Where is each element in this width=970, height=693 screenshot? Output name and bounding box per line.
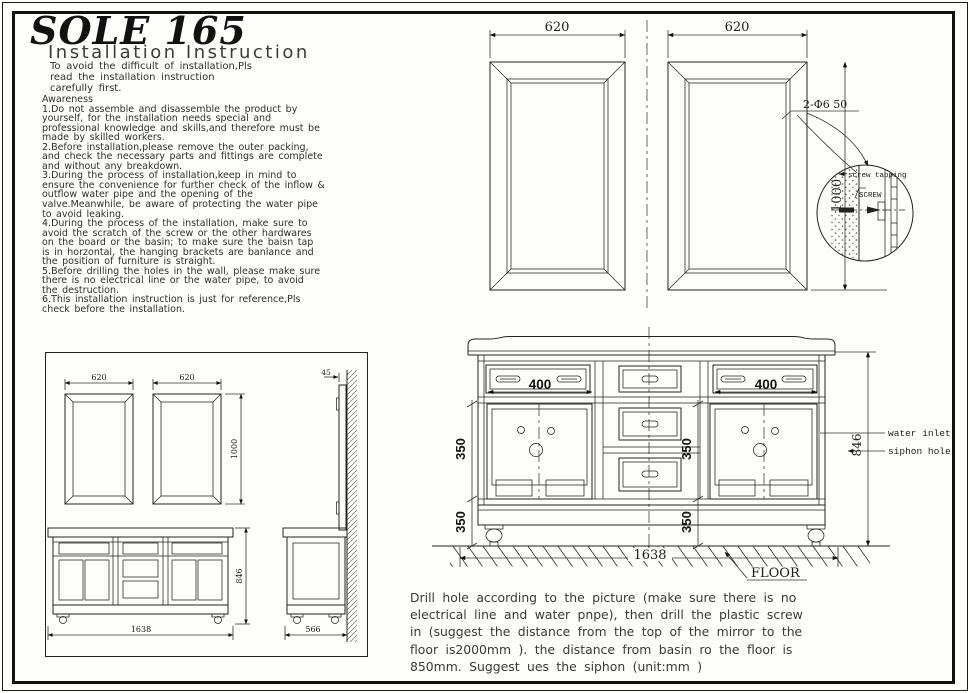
awareness-item-1: 1.Do not assemble and disassemble the pr…: [42, 105, 360, 143]
dim-mirror-width-right: 620: [668, 20, 807, 58]
drain-hole: [530, 444, 543, 457]
dim-350-base-mid: 350: [679, 511, 694, 533]
drawer-middle-2: [619, 408, 681, 440]
screw-spec-label: 2-Φ6 50: [803, 98, 847, 111]
faucet-hole: [772, 428, 779, 435]
dim-mirror-width-left: 620: [490, 20, 625, 58]
ov-620-left: 620: [91, 373, 106, 382]
ov-dim-wall-gap: 45: [321, 368, 347, 382]
ov-1638: 1638: [131, 625, 151, 634]
water-inlet-callout: water inlet: [820, 428, 951, 439]
mirror-left: [490, 62, 625, 290]
drawer-middle-top: [619, 366, 681, 392]
leg-left: [485, 525, 503, 546]
wall-mount-detail: screw tapping SCREW: [817, 162, 913, 264]
ov-mirror-side-view: [337, 385, 347, 530]
water-inlet-label: water inlet: [888, 428, 951, 439]
dim-620-right: 620: [725, 20, 750, 35]
siphon-hole-label: siphon hole: [888, 446, 951, 457]
ov-dim-mirror-height: 1000: [225, 394, 245, 504]
ov-620-right: 620: [179, 373, 194, 382]
awareness-item-2: 2.Before installation,please remove the …: [42, 143, 360, 172]
awareness-item-3: 3.During the process of installation,kee…: [42, 171, 360, 219]
page-subtitle: Installation Instruction: [48, 42, 310, 63]
awareness-item-6: 6.This installation instruction is just …: [42, 295, 360, 314]
overview-mirror-right: [153, 394, 221, 504]
installation-sheet: SOLE 165 Installation Instruction To avo…: [0, 0, 970, 693]
dim-620-left: 620: [545, 20, 570, 35]
screw-spec-callout: 2-Φ6 50: [782, 98, 868, 173]
faucet-hole: [742, 427, 749, 434]
ov-dim-width: 1638: [48, 625, 233, 640]
ov-dim-mirror-left: 620: [65, 373, 133, 390]
floor-label: FLOOR: [751, 566, 801, 581]
dim-350-left: 350 350: [453, 400, 477, 549]
awareness-item-4: 4.During the process of the installation…: [42, 219, 360, 267]
dim-846: 846: [850, 434, 864, 457]
ov-vanity-front: [48, 528, 233, 624]
ov-45: 45: [321, 368, 331, 377]
dim-400-left: 400: [529, 377, 552, 392]
dim-1638: 1638: [633, 548, 666, 563]
drill-note: Drill hole according to the picture (mak…: [410, 589, 840, 675]
dim-350-door-mid: 350: [679, 438, 694, 460]
awareness-item-5: 5.Before drilling the holes in the wall,…: [42, 267, 360, 296]
faucet-hole: [548, 428, 555, 435]
ov-dim-depth: 566: [285, 625, 347, 640]
overview-mirror-left: [65, 394, 133, 504]
mirror-right: [668, 62, 807, 290]
screw-label: SCREW: [859, 192, 882, 200]
countertop: [468, 337, 835, 356]
leg-right: [807, 525, 825, 546]
mirrors-front-drawing: 620 620 1000 2-Φ6 50: [435, 14, 960, 324]
ov-566: 566: [305, 625, 320, 634]
door-bay-right: [710, 404, 817, 499]
faucet-hole: [518, 427, 525, 434]
dim-350-middle: 350 350: [679, 400, 703, 549]
dim-350-base-left: 350: [453, 511, 468, 533]
dim-400-right: 400: [755, 377, 778, 392]
overview-drawing: 620 620 1000 45: [45, 352, 368, 657]
vanity-front-drawing: 400 400 350 350 350 350 846: [430, 325, 962, 593]
door-bay-left: [487, 404, 592, 499]
ov-vanity-side: [283, 528, 347, 624]
dim-350-door-left: 350: [453, 438, 468, 460]
intro-text: To avoid the difficult of installation,P…: [50, 62, 350, 94]
screw-tapping-label: screw tapping: [848, 172, 907, 180]
ov-dim-height: 846: [235, 528, 250, 624]
mirror-frame-section: [878, 167, 897, 259]
dim-total-height: 846: [835, 352, 876, 546]
awareness-section: Awareness 1.Do not assemble and disassem…: [42, 95, 360, 315]
ov-wall: [347, 370, 357, 642]
ov-dim-mirror-right: 620: [153, 373, 221, 390]
plinth: [478, 505, 825, 525]
ov-846: 846: [235, 568, 244, 583]
drain-hole: [754, 444, 767, 457]
ov-1000: 1000: [230, 439, 239, 459]
